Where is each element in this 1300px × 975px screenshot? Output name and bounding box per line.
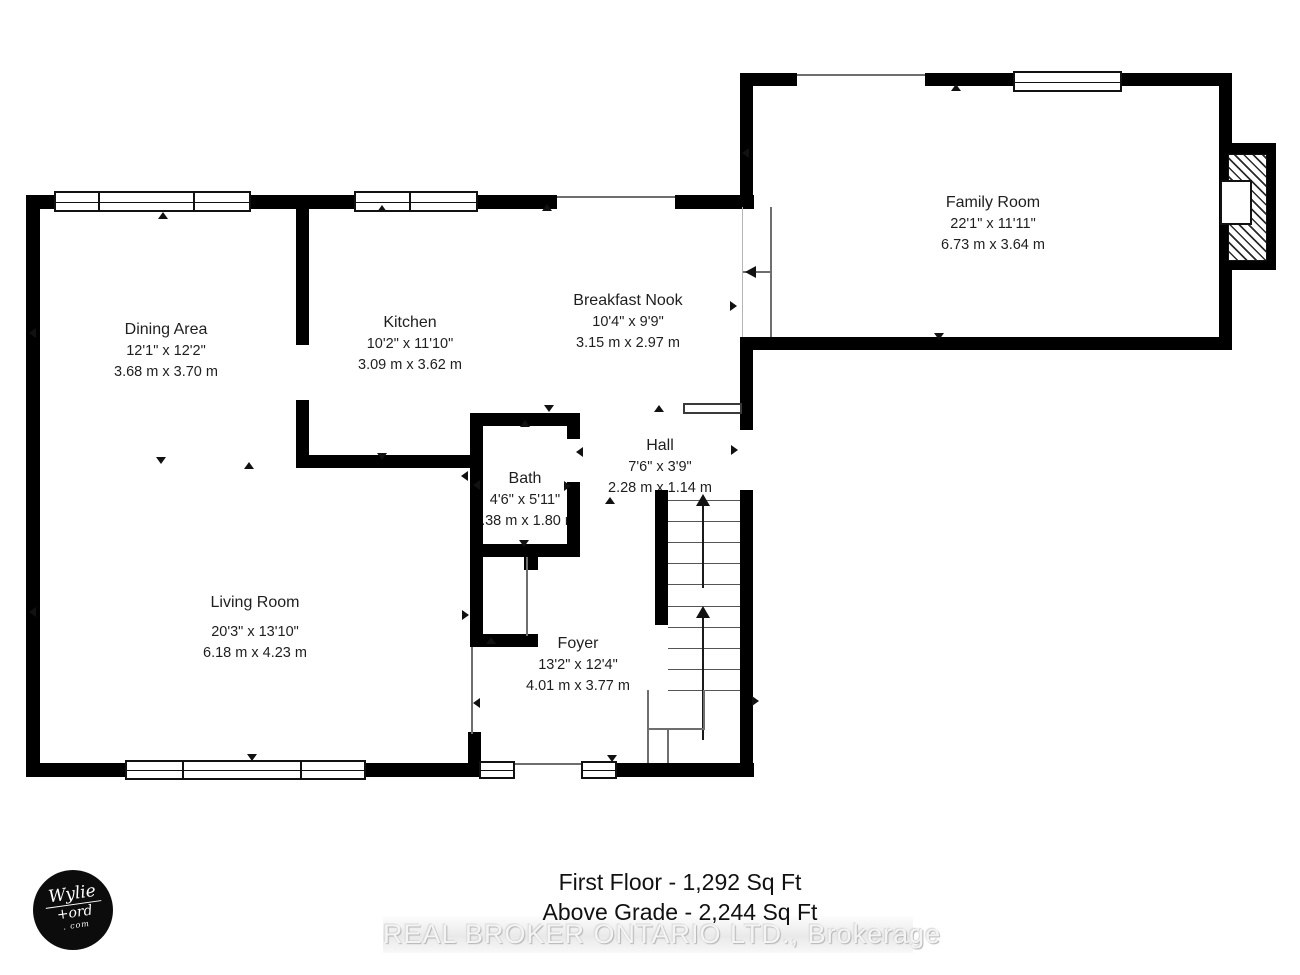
room-dims-ft: 22'1" x 11'11": [893, 214, 1093, 234]
fireplace-firebox: [1220, 180, 1252, 225]
tick-right: [731, 445, 738, 455]
tick-up: [654, 405, 664, 412]
opening-kitchen-top: [557, 196, 675, 198]
front-door-opening: [515, 763, 581, 765]
tick-left: [29, 328, 36, 338]
tick-right: [730, 301, 737, 311]
room-dims-ft: 10'2" x 11'10": [310, 334, 510, 354]
stair-landing-line: [647, 690, 649, 763]
footer-above-grade-area: Above Grade - 2,244 Sq Ft: [405, 899, 955, 926]
stair-tread: [668, 521, 740, 522]
tick-left: [461, 471, 468, 481]
room-label-kitchen: Kitchen 10'2" x 11'10" 3.09 m x 3.62 m: [310, 312, 510, 375]
tick-left: [742, 148, 749, 158]
tick-up: [486, 637, 496, 644]
stair-tread: [668, 584, 740, 585]
tick-left: [29, 607, 36, 617]
wall-bath-left: [470, 413, 483, 647]
wall-family-top-b: [925, 73, 1015, 86]
tick-down: [934, 333, 944, 340]
wylie-ford-logo: Wylie +ord . com: [33, 870, 113, 950]
hall-linen-shelf: [683, 403, 742, 414]
tick-right: [752, 696, 759, 706]
room-dims-ft: 13'2" x 12'4": [478, 655, 678, 675]
window-pane: [127, 762, 182, 778]
tick-down: [544, 405, 554, 412]
room-dims-ft: 10'4" x 9'9": [528, 312, 728, 332]
closet-open-side: [526, 557, 528, 636]
tick-up: [377, 205, 387, 212]
stair-landing-line: [647, 728, 705, 730]
wall-bottom-middle: [365, 763, 481, 777]
window-pane: [481, 763, 513, 777]
living-foyer-boundary: [471, 647, 473, 734]
room-dims-m: 3.09 m x 3.62 m: [310, 355, 510, 375]
room-dims-m: 6.73 m x 3.64 m: [893, 235, 1093, 255]
window-pane: [300, 762, 364, 778]
living-room-window: [125, 760, 366, 780]
room-name: Dining Area: [66, 319, 266, 340]
window-pane: [583, 763, 615, 777]
floor-plan: Family Room 22'1" x 11'11" 6.73 m x 3.64…: [0, 0, 1300, 975]
room-dims-ft: 12'1" x 12'2": [66, 341, 266, 361]
window-pane: [1015, 73, 1120, 90]
window-pane: [193, 193, 249, 210]
tick-up: [951, 84, 961, 91]
logo-text: Wylie +ord . com: [29, 865, 117, 937]
wall-top-dining-b: [250, 195, 356, 209]
room-name: Kitchen: [310, 312, 510, 333]
tick-right: [564, 481, 571, 491]
stair-up-arrow: [696, 606, 710, 618]
room-label-dining-area: Dining Area 12'1" x 12'2" 3.68 m x 3.70 …: [66, 319, 266, 382]
wall-bottom-foyer: [615, 763, 754, 777]
tick-down: [607, 755, 617, 762]
tick-down: [247, 754, 257, 761]
window-pane: [182, 762, 300, 778]
tick-up: [542, 204, 552, 211]
foyer-window-left: [479, 761, 515, 779]
tick-left: [576, 447, 583, 457]
steps-down-arrow: [745, 266, 756, 278]
room-dims-m: 3.15 m x 2.97 m: [528, 333, 728, 353]
tick-down: [377, 453, 387, 460]
room-name: Living Room: [155, 592, 355, 613]
window-pane: [98, 193, 193, 210]
wall-dining-kitchen-divider-upper: [296, 209, 309, 345]
room-label-breakfast-nook: Breakfast Nook 10'4" x 9'9" 3.15 m x 2.9…: [528, 290, 728, 353]
stair-landing-line: [703, 690, 705, 730]
stair-tread: [668, 669, 740, 670]
tick-up: [605, 497, 615, 504]
stair-tread: [668, 542, 740, 543]
tick-right: [462, 610, 469, 620]
room-dims-m: 1.38 m x 1.80 m: [440, 511, 610, 531]
steps-right-edge: [770, 207, 772, 337]
stair-up-arrow: [696, 494, 710, 506]
stair-tread: [668, 648, 740, 649]
tick-up: [158, 212, 168, 219]
family-room-window: [1013, 71, 1122, 92]
tick-up: [244, 462, 254, 469]
wall-family-top-c: [1120, 73, 1232, 86]
wall-stairs-left: [655, 490, 668, 625]
wall-bath-right-a: [567, 413, 580, 439]
wall-left-exterior: [26, 195, 40, 777]
wall-foyer-left-stub: [468, 732, 481, 764]
room-dims-m: 6.18 m x 4.23 m: [155, 643, 355, 663]
dining-window: [54, 191, 251, 212]
wall-family-top-a: [740, 73, 797, 86]
room-name: Family Room: [893, 192, 1093, 213]
wall-right-core-a: [740, 73, 753, 207]
window-pane: [409, 193, 476, 210]
stair-up-arrow-shaft: [702, 504, 704, 588]
room-label-family-room: Family Room 22'1" x 11'11" 6.73 m x 3.64…: [893, 192, 1093, 255]
window-pane: [56, 193, 98, 210]
footer-first-floor-area: First Floor - 1,292 Sq Ft: [405, 869, 955, 896]
tick-down: [156, 457, 166, 464]
kitchen-window: [354, 191, 478, 212]
stair-tread: [668, 563, 740, 564]
wall-family-bottom: [753, 337, 1232, 350]
tick-down: [519, 540, 529, 547]
opening-family-top: [797, 74, 925, 76]
tick-up: [520, 420, 530, 427]
room-dims-m: 3.68 m x 3.70 m: [66, 362, 266, 382]
stair-tread: [668, 627, 740, 628]
tick-left: [473, 480, 480, 490]
wall-bottom-living: [26, 763, 126, 777]
foyer-window-right: [581, 761, 617, 779]
room-name: Breakfast Nook: [528, 290, 728, 311]
wall-top-dining-a: [26, 195, 56, 209]
room-dims-ft: 4'6" x 5'11": [440, 490, 610, 510]
room-label-living-room: Living Room 20'3" x 13'10" 6.18 m x 4.23…: [155, 592, 355, 663]
room-name: Hall: [560, 435, 760, 456]
wall-right-core-c: [740, 490, 753, 777]
room-dims-ft: 20'3" x 13'10": [155, 622, 355, 642]
stair-landing-line: [667, 728, 669, 763]
tick-left: [473, 698, 480, 708]
wall-right-core-b: [740, 337, 753, 430]
